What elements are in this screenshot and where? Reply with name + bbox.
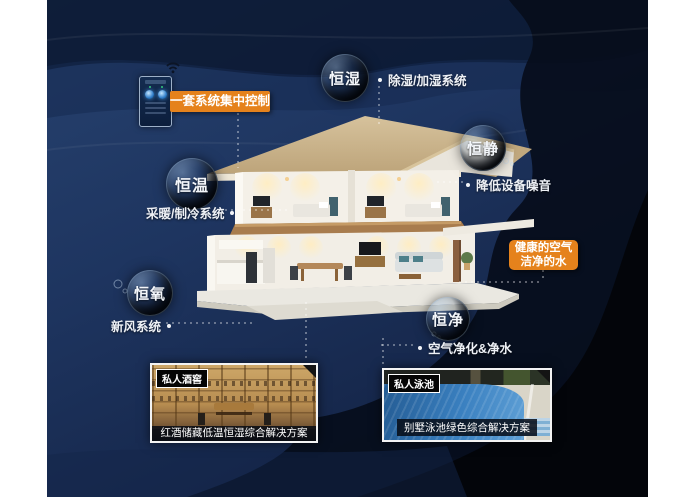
desc-text: 除湿/加湿系统	[388, 70, 466, 89]
bullet-dot	[466, 183, 470, 187]
bubble-hengshi: 恒湿	[321, 54, 369, 102]
bubble-label: 恒净	[432, 309, 464, 330]
desc-text: 采暖/制冷系统	[146, 203, 224, 222]
bullet-dot	[230, 211, 234, 215]
bubble-label: 恒温	[175, 172, 209, 196]
smart-control-panel	[139, 76, 172, 127]
bubble-hengjing: 恒静	[460, 125, 506, 171]
photo-tag: 私人泳池	[388, 374, 440, 393]
photo-caption: 红酒储藏低温恒湿综合解决方案	[152, 426, 316, 441]
highlight-box: 健康的空气 洁净的水	[509, 240, 578, 270]
bubble-desc-hengshi: 除湿/加湿系统	[378, 70, 466, 89]
bubble-desc-hengwen: 采暖/制冷系统	[146, 203, 234, 222]
highlight-line1: 健康的空气	[515, 241, 573, 255]
bubble-desc-hengyang: 新风系统	[111, 316, 171, 335]
corner-ribbon	[537, 370, 550, 383]
bubble-desc-hengjing: 降低设备噪音	[466, 175, 551, 194]
bubble-label: 恒静	[467, 138, 499, 159]
bubble-label: 恒湿	[329, 68, 361, 89]
bullet-dot	[418, 346, 422, 350]
photo-tag: 私人酒窖	[156, 369, 208, 388]
photo-caption: 别墅泳池绿色综合解决方案	[397, 419, 537, 436]
desc-text: 空气净化&净水	[428, 338, 512, 357]
central-control-label: 一套系统集中控制	[170, 91, 270, 112]
control-panel-header	[145, 80, 166, 84]
control-panel-button	[145, 90, 154, 99]
control-panel-row	[145, 102, 166, 104]
bubble-label: 恒氧	[134, 283, 166, 304]
corner-ribbon	[303, 365, 316, 378]
poster-canvas: 一套系统集中控制 健康的空气 洁净的水 恒湿 恒静 恒温 恒氧 恒净 除湿/加湿…	[47, 0, 648, 497]
bullet-dot	[167, 324, 171, 328]
bubble-hengyang: 恒氧	[127, 270, 173, 316]
control-panel-row	[145, 112, 166, 114]
control-panel-leds	[140, 86, 171, 88]
control-panel-button	[158, 90, 167, 99]
poster-page: 一套系统集中控制 健康的空气 洁净的水 恒湿 恒静 恒温 恒氧 恒净 除湿/加湿…	[0, 0, 700, 497]
desc-text: 降低设备噪音	[476, 175, 551, 194]
photo-wine-cellar: 私人酒窖 红酒储藏低温恒湿综合解决方案	[150, 363, 318, 443]
wifi-icon	[165, 61, 181, 74]
control-panel-row	[145, 107, 166, 109]
photo-pool: 私人泳池 别墅泳池绿色综合解决方案	[382, 368, 552, 442]
desc-text: 新风系统	[111, 316, 161, 335]
bubble-hengjing2: 恒净	[426, 297, 470, 341]
bullet-dot	[378, 78, 382, 82]
bubble-desc-hengjing2: 空气净化&净水	[418, 338, 512, 357]
highlight-line2: 洁净的水	[521, 255, 567, 269]
